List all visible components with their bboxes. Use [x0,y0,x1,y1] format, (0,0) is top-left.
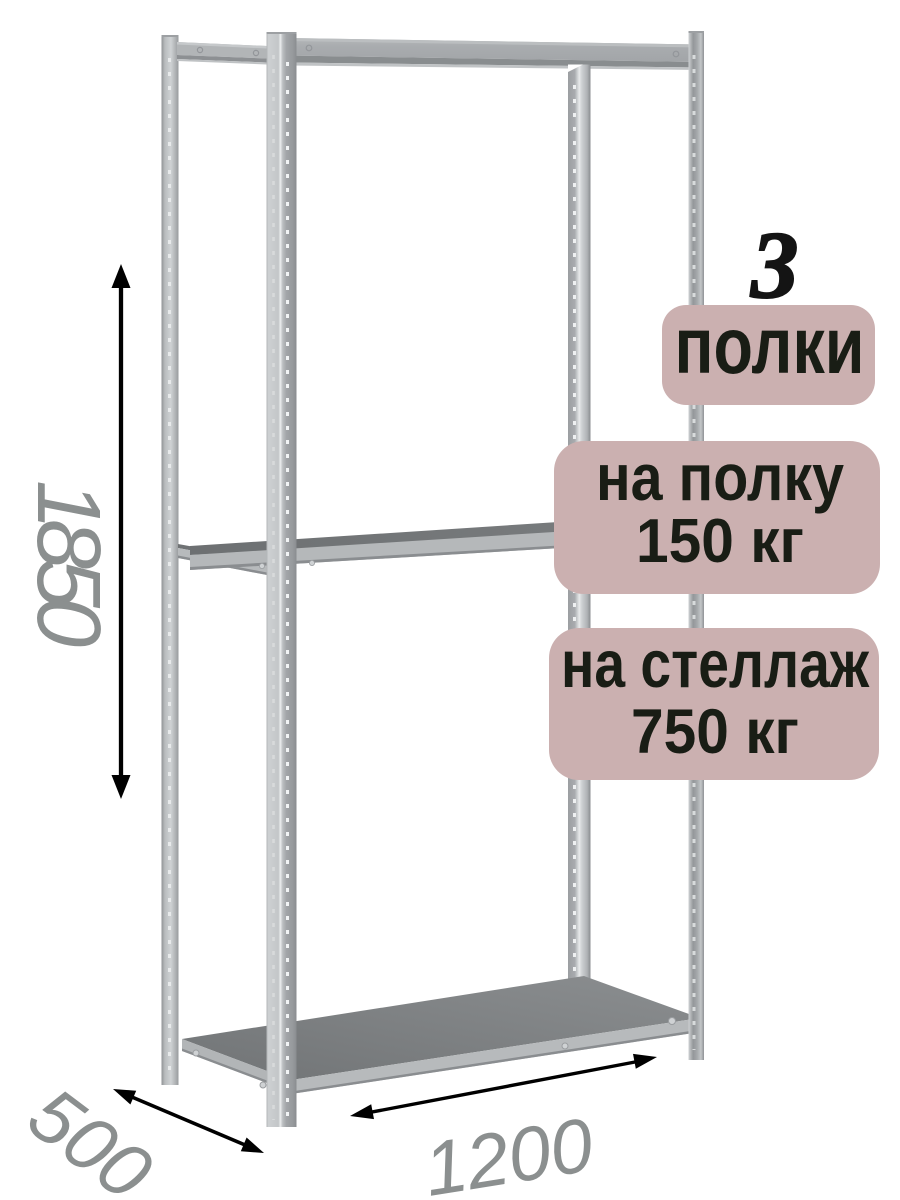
svg-text:1850: 1850 [18,480,118,647]
svg-text:на полку: на полку [596,440,844,514]
svg-text:150 кг: 150 кг [636,507,804,576]
svg-text:полки: полки [675,301,865,390]
svg-text:750 кг: 750 кг [631,697,799,767]
svg-text:на стеллаж: на стеллаж [561,627,870,702]
